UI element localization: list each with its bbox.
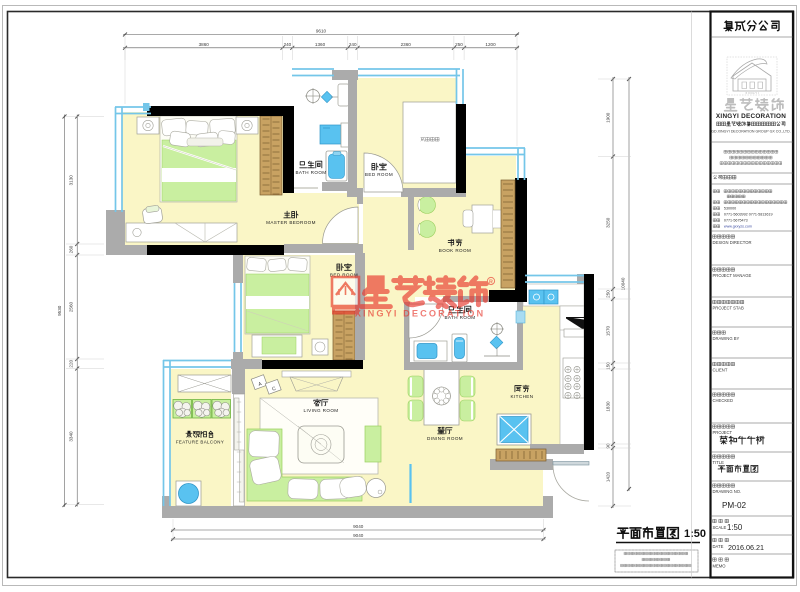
- svg-text:3130: 3130: [69, 175, 74, 186]
- svg-text:SCALE: SCALE: [713, 525, 727, 530]
- svg-text:220: 220: [69, 359, 74, 367]
- svg-text:DATE: DATE: [713, 544, 724, 549]
- svg-text:CLIENT: CLIENT: [713, 368, 728, 373]
- svg-text:9040: 9040: [353, 524, 364, 529]
- svg-text:1:50: 1:50: [684, 528, 706, 540]
- svg-text:DINING ROOM: DINING ROOM: [427, 436, 463, 441]
- svg-text:9040: 9040: [353, 533, 364, 538]
- svg-text:BED ROOM: BED ROOM: [365, 172, 393, 177]
- svg-text:10040: 10040: [621, 277, 626, 290]
- svg-text:3250: 3250: [606, 217, 611, 228]
- svg-text:1830: 1830: [606, 401, 611, 412]
- svg-text:240: 240: [284, 42, 292, 47]
- svg-text:250: 250: [455, 42, 463, 47]
- svg-text:DRAWING BY: DRAWING BY: [713, 336, 740, 341]
- svg-text:2016.06.21: 2016.06.21: [728, 543, 764, 552]
- svg-text:1200: 1200: [485, 42, 496, 47]
- svg-text:FEATURE BALCONY: FEATURE BALCONY: [176, 439, 224, 444]
- svg-text:XINGYI DECORATION: XINGYI DECORATION: [355, 309, 485, 319]
- svg-text:KITCHEN: KITCHEN: [511, 394, 534, 399]
- svg-text:PROJECT MANAGE: PROJECT MANAGE: [713, 273, 752, 278]
- svg-text:PROJECT: PROJECT: [713, 430, 733, 435]
- svg-text:1:50: 1:50: [727, 523, 743, 532]
- svg-text:260: 260: [69, 245, 74, 253]
- svg-text:9530: 9530: [57, 305, 62, 316]
- svg-text:0771-5603992 0771-5813619: 0771-5603992 0771-5813619: [724, 213, 773, 217]
- svg-text:DESIGN DIRECTOR: DESIGN DIRECTOR: [713, 240, 752, 245]
- svg-text:XINGYI DECORATION: XINGYI DECORATION: [716, 113, 786, 120]
- svg-text:R: R: [489, 280, 493, 286]
- svg-text:530000: 530000: [724, 207, 736, 211]
- svg-text:1900: 1900: [606, 112, 611, 123]
- svg-text:1420: 1420: [606, 471, 611, 482]
- svg-text:X I N G Y I: X I N G Y I: [745, 91, 758, 95]
- svg-text:2360: 2360: [401, 42, 412, 47]
- svg-text:3340: 3340: [69, 431, 74, 442]
- svg-text:BATH ROOM: BATH ROOM: [295, 170, 326, 175]
- svg-text:9610: 9610: [316, 29, 327, 34]
- svg-text:MEMO: MEMO: [713, 564, 727, 569]
- svg-text:250: 250: [606, 290, 611, 298]
- svg-text:LIVING ROOM: LIVING ROOM: [303, 408, 338, 413]
- svg-text:DRAWING NO.: DRAWING NO.: [713, 489, 742, 494]
- svg-text:MASTER BEDROOM: MASTER BEDROOM: [266, 220, 316, 225]
- svg-text:0771-5675473: 0771-5675473: [724, 219, 748, 223]
- svg-text:CHECKED: CHECKED: [713, 398, 733, 403]
- svg-text:240: 240: [349, 42, 357, 47]
- svg-text:2560: 2560: [69, 301, 74, 312]
- svg-text:BOOK ROOM: BOOK ROOM: [439, 248, 471, 253]
- svg-text:3860: 3860: [199, 42, 210, 47]
- svg-text:PM-02: PM-02: [722, 501, 747, 510]
- svg-text:1360: 1360: [315, 42, 326, 47]
- svg-text:PROJECT STAB: PROJECT STAB: [713, 306, 744, 311]
- svg-text:GD.XINGYI DECORATION GROUP GX: GD.XINGYI DECORATION GROUP GX CO.,LTD.: [711, 130, 790, 134]
- svg-text:www.gxxyzs.com: www.gxxyzs.com: [724, 225, 752, 229]
- svg-text:1570: 1570: [606, 325, 611, 336]
- svg-text:TITLE: TITLE: [713, 460, 725, 465]
